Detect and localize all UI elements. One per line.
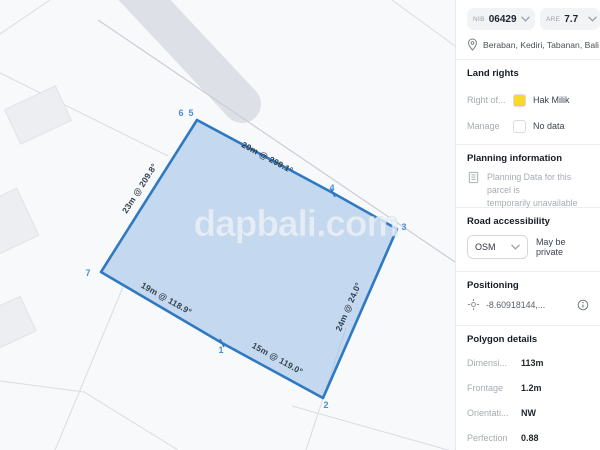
- land-rights-row-label: Right of...: [467, 95, 513, 105]
- polygon-details-rows: Dimensi... 113m Frontage 1.2m Orientati.…: [467, 350, 589, 450]
- map-canvas[interactable]: dapbali.com 20m @ 299.1° 23m @ 209.8° 19…: [0, 0, 455, 450]
- polygon-detail-row: Orientati... NW: [467, 400, 589, 425]
- polygon-detail-label: Orientati...: [467, 408, 521, 418]
- nib-label: NIB: [473, 16, 485, 23]
- polygon-detail-value: 1.2m: [521, 383, 542, 393]
- planning-message: Planning Data for this parcel is tempora…: [487, 171, 589, 211]
- chevron-down-icon: [511, 244, 520, 250]
- crosshair-icon: [467, 298, 480, 311]
- planning-message-line1: Planning Data for this parcel is: [487, 171, 589, 197]
- vertex-label-6: 6: [178, 108, 183, 118]
- coordinates-value: -8.60918144,...: [486, 300, 571, 310]
- vertex-label-2: 2: [323, 400, 328, 410]
- are-value: 7.7: [564, 14, 578, 25]
- parcel-viewer-app: dapbali.com 20m @ 299.1° 23m @ 209.8° 19…: [0, 0, 600, 450]
- polygon-detail-row: Perfection 0.88: [467, 425, 589, 450]
- polygon-details-title: Polygon details: [467, 334, 589, 345]
- polygon-detail-value: NW: [521, 408, 536, 418]
- nib-value: 06429: [489, 14, 517, 25]
- vertex-label-4: 4: [329, 183, 334, 193]
- land-rights-row-value: No data: [533, 121, 565, 131]
- location-row: Beraban, Kediri, Tabanan, Bali: [467, 38, 589, 51]
- road-accessibility-title: Road accessibility: [467, 216, 589, 227]
- planning-title: Planning information: [467, 153, 589, 164]
- chevron-down-icon: [521, 16, 530, 22]
- vertex-label-1: 1: [218, 345, 223, 355]
- nib-selector[interactable]: NIB 06429: [467, 8, 535, 30]
- location-pin-icon: [467, 38, 478, 51]
- land-rights-row: Right of... Hak Milik: [467, 87, 589, 113]
- positioning-title: Positioning: [467, 280, 589, 291]
- color-swatch: [513, 94, 526, 107]
- polygon-detail-value: 113m: [521, 358, 544, 368]
- planning-message-line2: temporarily unavailable: [487, 197, 589, 210]
- are-selector[interactable]: Are 7.7: [540, 8, 600, 30]
- polygon-detail-label: Perfection: [467, 433, 521, 443]
- are-label: Are: [546, 16, 560, 23]
- land-rights-title: Land rights: [467, 68, 589, 79]
- vertex-label-3: 3: [401, 222, 406, 232]
- info-icon[interactable]: [577, 299, 589, 311]
- polygon-details-section: Polygon details Dimensi... 113m Frontage…: [456, 326, 600, 450]
- land-rights-row-value: Hak Milik: [533, 95, 570, 105]
- road-accessibility-row: OSM May be private: [467, 235, 589, 259]
- color-swatch: [513, 120, 526, 133]
- vertex-label-5: 5: [188, 108, 193, 118]
- positioning-row: -8.60918144,...: [467, 298, 589, 311]
- land-rights-rows: Right of... Hak Milik Manage No data: [467, 87, 589, 139]
- road-source-value: OSM: [475, 242, 496, 252]
- parcel-header-section: NIB 06429 Are 7.7 Beraban, Kediri, Taban…: [456, 0, 600, 60]
- polygon-detail-row: Dimensi... 113m: [467, 350, 589, 375]
- road-note: May be private: [536, 237, 589, 257]
- polygon-detail-label: Frontage: [467, 383, 521, 393]
- chevron-down-icon: [588, 16, 597, 22]
- road-source-select[interactable]: OSM: [467, 235, 528, 259]
- parcel-sidebar: NIB 06429 Are 7.7 Beraban, Kediri, Taban…: [455, 0, 600, 450]
- polygon-detail-value: 0.88: [521, 433, 539, 443]
- polygon-detail-row: Frontage 1.2m: [467, 375, 589, 400]
- watermark: dapbali.com: [194, 203, 399, 244]
- map-svg: dapbali.com 20m @ 299.1° 23m @ 209.8° 19…: [0, 0, 455, 450]
- land-rights-row-label: Manage: [467, 121, 513, 131]
- road-accessibility-section: Road accessibility OSM May be private: [456, 208, 600, 272]
- polygon-detail-label: Dimensi...: [467, 358, 521, 368]
- positioning-section: Positioning -8.60918144,...: [456, 272, 600, 326]
- planning-document-icon: [467, 171, 480, 184]
- location-text: Beraban, Kediri, Tabanan, Bali: [483, 40, 599, 50]
- land-rights-section: Land rights Right of... Hak Milik Manage…: [456, 60, 600, 145]
- planning-section: Planning information Planning Data for t…: [456, 145, 600, 208]
- planning-message-row: Planning Data for this parcel is tempora…: [467, 171, 589, 211]
- parcel-chips: NIB 06429 Are 7.7: [467, 8, 589, 30]
- vertex-label-7: 7: [85, 268, 90, 278]
- land-rights-row: Manage No data: [467, 113, 589, 139]
